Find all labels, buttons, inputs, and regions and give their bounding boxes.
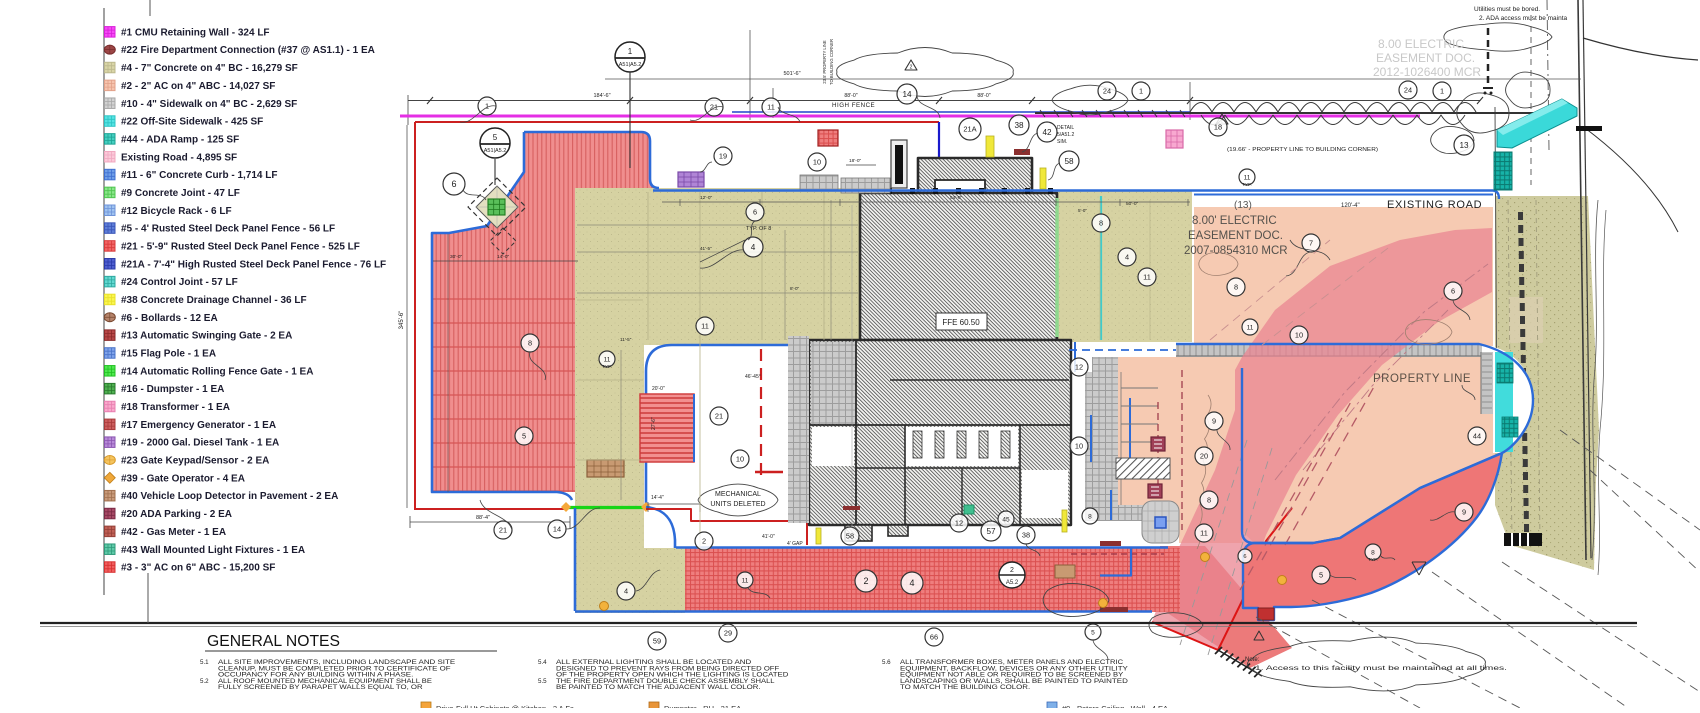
svg-text:1: 1 (485, 102, 489, 111)
svg-text:2: 2 (910, 65, 913, 71)
svg-text:11: 11 (701, 322, 709, 331)
svg-text:FULLY SCREENED BY PARAPET WALL: FULLY SCREENED BY PARAPET WALLS EQUAL TO… (218, 684, 423, 691)
svg-text:54'-0": 54'-0" (950, 195, 963, 201)
svg-text:345'-6": 345'-6" (399, 311, 405, 330)
svg-text:5.5: 5.5 (538, 678, 547, 685)
svg-text:27'-6": 27'-6" (651, 417, 657, 430)
svg-text:21: 21 (715, 412, 723, 421)
svg-text:2: 2 (702, 537, 706, 546)
svg-text:20'-0": 20'-0" (652, 386, 665, 392)
svg-text:88'-4": 88'-4" (476, 515, 490, 521)
svg-text:5.1: 5.1 (200, 659, 209, 666)
svg-text:#12 Bicycle Rack - 6 LF: #12 Bicycle Rack - 6 LF (121, 206, 232, 217)
svg-text:#22 Fire Department Connectio: #22 Fire Department Connection (#37 @ AS… (121, 45, 375, 56)
svg-text:8: 8 (1207, 496, 1211, 505)
svg-text:2007-0854310 MCR: 2007-0854310 MCR (1184, 245, 1288, 257)
svg-text:30'-0": 30'-0" (450, 254, 463, 260)
svg-text:#13 Automatic Swinging Gate -: #13 Automatic Swinging Gate - 2 EA (121, 331, 292, 342)
svg-text:12: 12 (1075, 363, 1083, 372)
svg-text:HIGH FENCE: HIGH FENCE (832, 102, 875, 109)
svg-text:#42 - Gas Meter - 1 EA: #42 - Gas Meter - 1 EA (121, 527, 226, 538)
svg-text:#24 Control Joint - 57 LF: #24 Control Joint - 57 LF (121, 277, 238, 288)
svg-text:Note:: Note: (1245, 657, 1260, 663)
svg-text:SIM.: SIM. (1057, 139, 1067, 145)
svg-text:5: 5 (1091, 629, 1095, 636)
svg-text:5.4: 5.4 (538, 659, 547, 666)
svg-text:MECHANICAL: MECHANICAL (715, 491, 761, 498)
svg-text:50'-0": 50'-0" (1126, 201, 1139, 207)
svg-text:11: 11 (604, 356, 611, 363)
svg-text:EXISTING ROAD: EXISTING ROAD (1387, 199, 1482, 211)
svg-text:6: 6 (451, 179, 456, 189)
svg-text:88'-0": 88'-0" (977, 93, 990, 99)
svg-text:14: 14 (902, 90, 912, 99)
svg-text:10: 10 (813, 158, 821, 167)
svg-text:EASEMENT DOC.: EASEMENT DOC. (1376, 51, 1475, 65)
svg-text:TYP.: TYP. (1368, 557, 1377, 562)
svg-text:38: 38 (1014, 121, 1024, 130)
svg-text:(13): (13) (1234, 200, 1252, 211)
svg-text:4: 4 (751, 243, 756, 252)
svg-text:6: 6 (1243, 554, 1246, 560)
svg-text:6: 6 (753, 208, 757, 217)
svg-text:14'-4": 14'-4" (651, 495, 664, 501)
svg-text:#6 - Bollards - 12 EA: #6 - Bollards - 12 EA (121, 313, 218, 324)
svg-text:2: 2 (863, 576, 868, 586)
svg-text:9: 9 (1212, 417, 1216, 426)
svg-text:#3 - 3" AC on 6" ABC - 15,200: #3 - 3" AC on 6" ABC - 15,200 SF (121, 563, 275, 574)
svg-text:4’ GAP: 4’ GAP (787, 541, 803, 547)
svg-text:#40 Vehicle Loop Detector in P: #40 Vehicle Loop Detector in Pavement - … (121, 491, 338, 502)
svg-text:11: 11 (742, 577, 749, 584)
svg-text:46'-45°: 46'-45° (745, 374, 761, 380)
svg-text:5.6: 5.6 (882, 659, 891, 666)
svg-text:2. ADA access must be mainta: 2. ADA access must be mainta (1479, 15, 1568, 22)
svg-text:BE PAINTED TO MATCH THE ADJACE: BE PAINTED TO MATCH THE ADJACENT WALL CO… (556, 684, 761, 691)
svg-text:#10 - 4" Sidewalk on 4" BC - 2: #10 - 4" Sidewalk on 4" BC - 2,629 SF (121, 99, 297, 110)
svg-text:Dumpster - RH - 21 EA: Dumpster - RH - 21 EA (664, 704, 741, 708)
svg-text:TO MATCH THE BUILDING COLOR.: TO MATCH THE BUILDING COLOR. (900, 684, 1031, 691)
svg-text:#38 Concrete Drainage Channel: #38 Concrete Drainage Channel - 36 LF (121, 295, 307, 306)
svg-text:11: 11 (1247, 324, 1254, 331)
svg-text:UNITS DELETED: UNITS DELETED (710, 501, 765, 508)
svg-text:#9 Concrete Joint - 47 LF: #9 Concrete Joint - 47 LF (121, 188, 240, 199)
svg-text:10: 10 (1295, 331, 1303, 340)
svg-text:A51|A5.2: A51|A5.2 (619, 62, 642, 68)
svg-text:24: 24 (1404, 86, 1412, 95)
svg-text:PROPERTY LINE: PROPERTY LINE (1373, 373, 1471, 385)
svg-text:GENERAL NOTES: GENERAL NOTES (207, 633, 340, 650)
svg-text:7: 7 (1309, 239, 1313, 248)
svg-text:#15 Flag Pole - 1 EA: #15 Flag Pole - 1 EA (121, 349, 216, 360)
svg-text:6: 6 (1451, 287, 1455, 296)
svg-text:Existing Road - 4,895 SF: Existing Road - 4,895 SF (121, 152, 237, 163)
svg-text:8.00 ELECTRIC: 8.00 ELECTRIC (1378, 37, 1464, 51)
svg-text:#20 ADA Parking - 2 EA: #20 ADA Parking - 2 EA (121, 509, 232, 520)
svg-text:8: 8 (528, 339, 532, 348)
svg-text:#21A - 7'-4" High Rusted Steel: #21A - 7'-4" High Rusted Steel Deck Pane… (121, 259, 386, 270)
svg-text:A5.2: A5.2 (1006, 580, 1019, 586)
svg-text:5/A51.2: 5/A51.2 (1057, 132, 1074, 138)
svg-text:Drive-Full Ht Cabinets @ Kitch: Drive-Full Ht Cabinets @ Kitchen - 2 A F… (436, 704, 575, 708)
svg-text:5.2: 5.2 (200, 678, 209, 685)
svg-text:21A: 21A (963, 125, 976, 134)
svg-text:18: 18 (1214, 123, 1222, 132)
svg-text:18'-0": 18'-0" (849, 158, 862, 164)
svg-text:9: 9 (1462, 508, 1466, 517)
svg-text:58: 58 (1064, 157, 1074, 166)
svg-text:1: 1 (1440, 87, 1444, 96)
svg-text:11: 11 (1143, 273, 1151, 282)
svg-text:DETAIL: DETAIL (1057, 125, 1074, 131)
svg-text:42: 42 (1042, 128, 1052, 137)
svg-text:24: 24 (1103, 87, 1111, 96)
svg-text:10: 10 (1075, 442, 1083, 451)
svg-text:10: 10 (736, 455, 744, 464)
svg-text:58: 58 (846, 532, 854, 541)
svg-text:19: 19 (719, 152, 727, 161)
svg-text:#14 Automatic Rolling Fence Ga: #14 Automatic Rolling Fence Gate - 1 EA (121, 366, 313, 377)
svg-text:120'-4": 120'-4" (1341, 203, 1360, 209)
svg-text:13: 13 (1459, 141, 1469, 150)
svg-text:11: 11 (1244, 174, 1251, 181)
svg-text:EASEMENT DOC.: EASEMENT DOC. (1188, 230, 1283, 242)
svg-text:TO BUILDING CORNER: TO BUILDING CORNER (829, 39, 834, 85)
svg-text:2: 2 (1010, 567, 1014, 574)
svg-text:#17 Emergency Generator - 1 EA: #17 Emergency Generator - 1 EA (121, 420, 276, 431)
svg-text:TYP.: TYP. (1242, 182, 1251, 187)
svg-text:14'-0": 14'-0" (497, 254, 510, 260)
svg-text:#18 Transformer - 1 EA: #18 Transformer - 1 EA (121, 402, 230, 413)
svg-text:#19 - 2000 Gal. Diesel Tank -: #19 - 2000 Gal. Diesel Tank - 1 EA (121, 438, 279, 449)
svg-text:59: 59 (653, 637, 661, 646)
svg-text:#44 - ADA Ramp - 125 SF: #44 - ADA Ramp - 125 SF (121, 134, 239, 145)
svg-text:8: 8 (1234, 283, 1238, 292)
svg-text:#1 CMU Retaining Wall - 324 LF: #1 CMU Retaining Wall - 324 LF (121, 27, 270, 38)
svg-text:4: 4 (624, 587, 628, 596)
svg-text:#43 Wall Mounted Light Fixture: #43 Wall Mounted Light Fixtures - 1 EA (121, 545, 305, 556)
svg-text:#23 Gate Keypad/Sensor - 2 EA: #23 Gate Keypad/Sensor - 2 EA (121, 456, 269, 467)
svg-text:TYP.: TYP. (602, 364, 611, 369)
svg-text:1: 1 (628, 47, 633, 56)
svg-text:#4 - 7" Concrete on 4" BC - 16: #4 - 7" Concrete on 4" BC - 16,279 SF (121, 63, 298, 74)
svg-text:14: 14 (553, 525, 561, 534)
svg-text:8: 8 (1099, 219, 1103, 228)
svg-text:41'-0": 41'-0" (762, 534, 775, 540)
svg-text:11: 11 (767, 103, 775, 112)
svg-text:#21 - 5'-9" Rusted Steel Deck: #21 - 5'-9" Rusted Steel Deck Panel Fenc… (121, 241, 360, 252)
svg-text:88'-0": 88'-0" (844, 93, 857, 99)
svg-text:8'-0": 8'-0" (790, 286, 800, 291)
svg-text:TYP. OF 8: TYP. OF 8 (746, 226, 771, 232)
svg-text:5: 5 (522, 432, 526, 441)
svg-text:1: 1 (1139, 87, 1143, 96)
svg-text:FFE 60.50: FFE 60.50 (942, 318, 980, 327)
svg-text:8: 8 (1088, 513, 1092, 520)
svg-text:(19.66' - PROPERTY LINE TO BUI: (19.66' - PROPERTY LINE TO BUILDING CORN… (1227, 147, 1378, 153)
svg-text:44: 44 (1473, 432, 1481, 441)
svg-text:2012-1026400 MCR: 2012-1026400 MCR (1373, 65, 1481, 79)
svg-text:11'-5": 11'-5" (620, 337, 632, 342)
svg-text:184'-6": 184'-6" (593, 93, 610, 99)
svg-text:#11 - 6" Concrete Curb - 1,714: #11 - 6" Concrete Curb - 1,714 LF (121, 170, 277, 181)
svg-text:12'-0": 12'-0" (700, 195, 713, 201)
svg-text:57: 57 (986, 527, 996, 536)
svg-text:Utilities must be bored.: Utilities must be bored. (1474, 6, 1540, 13)
svg-text:23.5' PROPERTY LINE: 23.5' PROPERTY LINE (822, 40, 827, 84)
svg-text:#39 - Gate Operator - 4 EA: #39 - Gate Operator - 4 EA (121, 473, 245, 484)
svg-text:#5 - 4' Rusted Steel Deck Pane: #5 - 4' Rusted Steel Deck Panel Fence - … (121, 224, 335, 235)
svg-text:5'-0": 5'-0" (1078, 208, 1087, 213)
svg-text:#2 - 2" AC on 4" ABC - 14,027: #2 - 2" AC on 4" ABC - 14,027 SF (121, 81, 275, 92)
svg-text:#9 - Patere Ceiling - Wall - 4: #9 - Patere Ceiling - Wall - 4 EA (1062, 704, 1168, 708)
svg-text:A51|A5.2: A51|A5.2 (484, 148, 507, 154)
svg-text:66: 66 (930, 633, 938, 642)
svg-text:29: 29 (724, 629, 732, 638)
svg-text:1. Access to this facility m: 1. Access to this facility must be maint… (1255, 665, 1507, 672)
svg-text:20: 20 (1200, 452, 1208, 461)
svg-text:38: 38 (1022, 531, 1030, 540)
svg-text:4: 4 (909, 578, 914, 588)
svg-text:5: 5 (1319, 571, 1323, 580)
svg-text:41'-5": 41'-5" (700, 246, 712, 251)
svg-text:501'-6": 501'-6" (783, 71, 800, 77)
svg-text:21: 21 (499, 526, 507, 535)
svg-text:45: 45 (1002, 516, 1010, 523)
svg-text:5: 5 (493, 133, 498, 142)
svg-text:12: 12 (955, 519, 963, 528)
svg-text:8: 8 (1371, 549, 1375, 556)
svg-text:#16 - Dumpster - 1 EA: #16 - Dumpster - 1 EA (121, 384, 224, 395)
svg-text:#22 Off-Site Sidewalk - 425 SF: #22 Off-Site Sidewalk - 425 SF (121, 117, 263, 128)
svg-text:4: 4 (1125, 253, 1129, 262)
svg-text:11: 11 (1200, 529, 1208, 538)
svg-text:8.00' ELECTRIC: 8.00' ELECTRIC (1192, 215, 1277, 227)
